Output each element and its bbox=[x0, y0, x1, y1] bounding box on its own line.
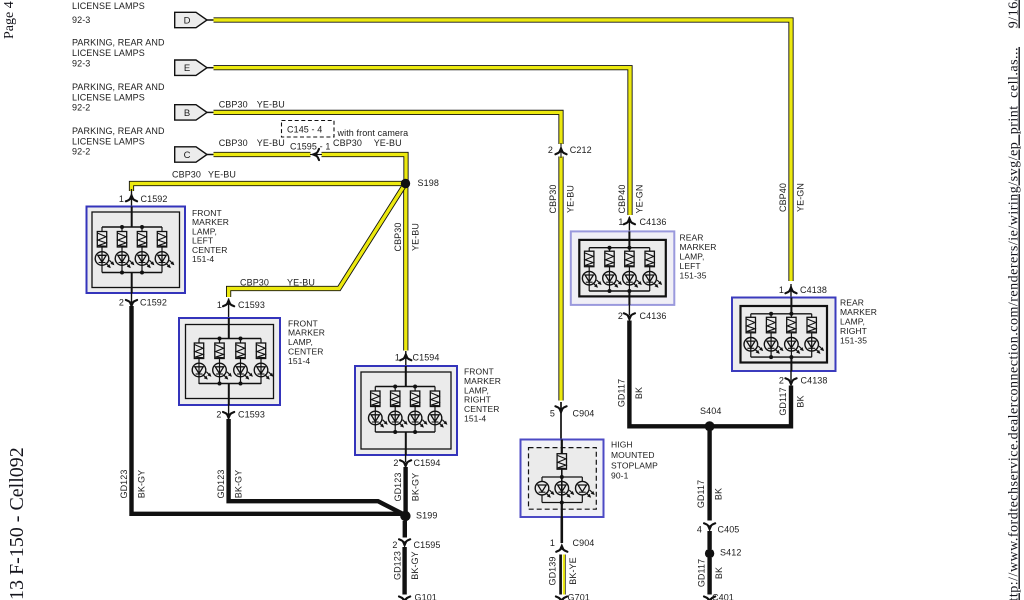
svg-text:CBP30: CBP30 bbox=[219, 100, 248, 110]
svg-text:GD117: GD117 bbox=[617, 379, 627, 407]
svg-text:2: 2 bbox=[618, 311, 623, 321]
svg-text:BK: BK bbox=[714, 567, 724, 579]
svg-text:9/16/2016: 9/16/2016 bbox=[1007, 0, 1022, 28]
svg-text:YE-BU: YE-BU bbox=[287, 278, 315, 288]
svg-text:S199: S199 bbox=[416, 511, 437, 521]
svg-text:YE-BU: YE-BU bbox=[257, 100, 285, 110]
svg-text:LAMP,: LAMP, bbox=[840, 317, 865, 327]
svg-text:C904: C904 bbox=[573, 409, 595, 419]
svg-text:LICENSE LAMPS: LICENSE LAMPS bbox=[72, 93, 145, 103]
svg-text:C405: C405 bbox=[718, 525, 740, 535]
svg-text:S404: S404 bbox=[700, 406, 721, 416]
svg-text:MOUNTED: MOUNTED bbox=[611, 450, 655, 460]
svg-text:PARKING, REAR AND: PARKING, REAR AND bbox=[72, 37, 165, 47]
svg-text:GD123: GD123 bbox=[393, 551, 403, 580]
svg-text:C1593: C1593 bbox=[238, 300, 265, 310]
svg-text:BK: BK bbox=[796, 395, 806, 407]
svg-text:C212: C212 bbox=[570, 145, 592, 155]
svg-text:YE-BU: YE-BU bbox=[257, 138, 285, 148]
svg-text:REAR: REAR bbox=[680, 233, 704, 243]
svg-text:CBP30: CBP30 bbox=[240, 278, 269, 288]
svg-text:C1594: C1594 bbox=[414, 458, 441, 468]
svg-text:92-3: 92-3 bbox=[72, 58, 90, 68]
svg-text:S412: S412 bbox=[720, 548, 741, 558]
svg-text:1: 1 bbox=[395, 353, 400, 363]
svg-text:92-3: 92-3 bbox=[72, 15, 90, 25]
svg-text:B: B bbox=[184, 108, 190, 119]
svg-text:CBP30: CBP30 bbox=[393, 222, 403, 251]
svg-text:2: 2 bbox=[216, 410, 221, 420]
svg-text:YE-BU: YE-BU bbox=[374, 138, 402, 148]
svg-text:CBP30: CBP30 bbox=[548, 184, 558, 213]
svg-text:2: 2 bbox=[393, 458, 398, 468]
svg-text:C1593: C1593 bbox=[238, 410, 265, 420]
svg-text:YE-BU: YE-BU bbox=[208, 170, 236, 180]
svg-text:1: 1 bbox=[119, 194, 124, 204]
svg-text:YE-BU: YE-BU bbox=[566, 185, 576, 213]
svg-text:151-35: 151-35 bbox=[680, 271, 707, 281]
svg-text:YE-GN: YE-GN bbox=[796, 183, 806, 212]
svg-text:151-4: 151-4 bbox=[288, 356, 310, 366]
svg-text:C145 - 4: C145 - 4 bbox=[287, 125, 322, 135]
svg-text:CBP30: CBP30 bbox=[333, 138, 362, 148]
svg-text:BK: BK bbox=[714, 488, 724, 500]
svg-text:G701: G701 bbox=[568, 593, 590, 600]
svg-text:GD123: GD123 bbox=[119, 469, 129, 498]
svg-text:1: 1 bbox=[217, 300, 222, 310]
svg-text:2013 F-150 - Cell092: 2013 F-150 - Cell092 bbox=[6, 447, 28, 600]
svg-text:92-2: 92-2 bbox=[72, 147, 90, 157]
svg-text:C4138: C4138 bbox=[800, 285, 827, 295]
svg-text:STOPLAMP: STOPLAMP bbox=[611, 460, 658, 470]
svg-text:C1592: C1592 bbox=[140, 298, 167, 308]
svg-text:PARKING, REAR AND: PARKING, REAR AND bbox=[72, 82, 165, 92]
svg-text:YE-GN: YE-GN bbox=[635, 184, 645, 213]
svg-text:MARKER: MARKER bbox=[680, 242, 717, 252]
svg-text:1: 1 bbox=[550, 538, 555, 548]
svg-text:BK-GY: BK-GY bbox=[411, 473, 421, 502]
svg-text:REAR: REAR bbox=[840, 298, 864, 308]
svg-text:MARKER: MARKER bbox=[840, 307, 877, 317]
svg-text:C904: C904 bbox=[573, 538, 595, 548]
svg-text:C401: C401 bbox=[712, 593, 734, 600]
svg-text:CBP30: CBP30 bbox=[219, 138, 248, 148]
svg-text:BK-YE: BK-YE bbox=[568, 557, 578, 585]
svg-text:LICENSE LAMPS: LICENSE LAMPS bbox=[72, 1, 145, 11]
svg-text:C1595 - 1: C1595 - 1 bbox=[290, 142, 330, 152]
svg-text:http://www.fordtechservice.dea: http://www.fordtechservice.dealerconnect… bbox=[1007, 47, 1022, 600]
svg-text:GD139: GD139 bbox=[548, 556, 558, 585]
svg-text:2: 2 bbox=[779, 376, 784, 386]
svg-text:HIGH: HIGH bbox=[611, 440, 633, 450]
svg-text:BK-GY: BK-GY bbox=[234, 470, 244, 499]
svg-text:GD117: GD117 bbox=[696, 480, 706, 508]
svg-text:G101: G101 bbox=[415, 593, 437, 600]
svg-text:LEFT: LEFT bbox=[680, 261, 701, 271]
svg-text:C4136: C4136 bbox=[640, 217, 667, 227]
svg-text:BK-GY: BK-GY bbox=[410, 551, 420, 580]
svg-text:LAMP,: LAMP, bbox=[680, 252, 705, 262]
svg-text:1: 1 bbox=[779, 285, 784, 295]
svg-text:90-1: 90-1 bbox=[611, 471, 629, 481]
svg-text:151-4: 151-4 bbox=[464, 414, 486, 424]
svg-text:C1592: C1592 bbox=[141, 194, 168, 204]
svg-text:BK: BK bbox=[634, 387, 644, 399]
svg-text:GD123: GD123 bbox=[393, 472, 403, 501]
svg-text:C: C bbox=[184, 150, 191, 161]
svg-text:2: 2 bbox=[119, 298, 124, 308]
svg-text:CBP40: CBP40 bbox=[617, 184, 627, 213]
svg-text:E: E bbox=[184, 63, 190, 74]
svg-text:1: 1 bbox=[618, 217, 623, 227]
svg-text:2: 2 bbox=[548, 145, 553, 155]
svg-text:C1595: C1595 bbox=[414, 540, 441, 550]
svg-text:92-2: 92-2 bbox=[72, 103, 90, 113]
svg-text:C4138: C4138 bbox=[801, 376, 828, 386]
svg-text:GD117: GD117 bbox=[697, 559, 707, 587]
svg-text:with front camera: with front camera bbox=[337, 128, 409, 138]
svg-text:CBP40: CBP40 bbox=[778, 183, 788, 212]
svg-text:GD123: GD123 bbox=[216, 469, 226, 498]
svg-text:RIGHT: RIGHT bbox=[840, 326, 867, 336]
svg-text:4: 4 bbox=[697, 525, 702, 535]
svg-text:Page 4 of 9: Page 4 of 9 bbox=[2, 0, 17, 39]
svg-text:C1594: C1594 bbox=[413, 353, 440, 363]
svg-text:151-4: 151-4 bbox=[192, 254, 214, 264]
svg-text:LICENSE LAMPS: LICENSE LAMPS bbox=[72, 48, 145, 58]
svg-text:151-35: 151-35 bbox=[840, 336, 867, 346]
svg-text:PARKING, REAR AND: PARKING, REAR AND bbox=[72, 126, 165, 136]
svg-text:BK-GY: BK-GY bbox=[137, 470, 147, 499]
svg-text:S198: S198 bbox=[418, 178, 439, 188]
svg-text:D: D bbox=[184, 15, 191, 26]
svg-text:CBP30: CBP30 bbox=[172, 170, 201, 180]
svg-text:5: 5 bbox=[550, 409, 555, 419]
svg-text:YE-BU: YE-BU bbox=[411, 223, 421, 251]
svg-text:LICENSE LAMPS: LICENSE LAMPS bbox=[72, 137, 145, 147]
svg-text:2: 2 bbox=[392, 540, 397, 550]
svg-text:C4136: C4136 bbox=[640, 311, 667, 321]
svg-text:GD117: GD117 bbox=[778, 387, 788, 415]
